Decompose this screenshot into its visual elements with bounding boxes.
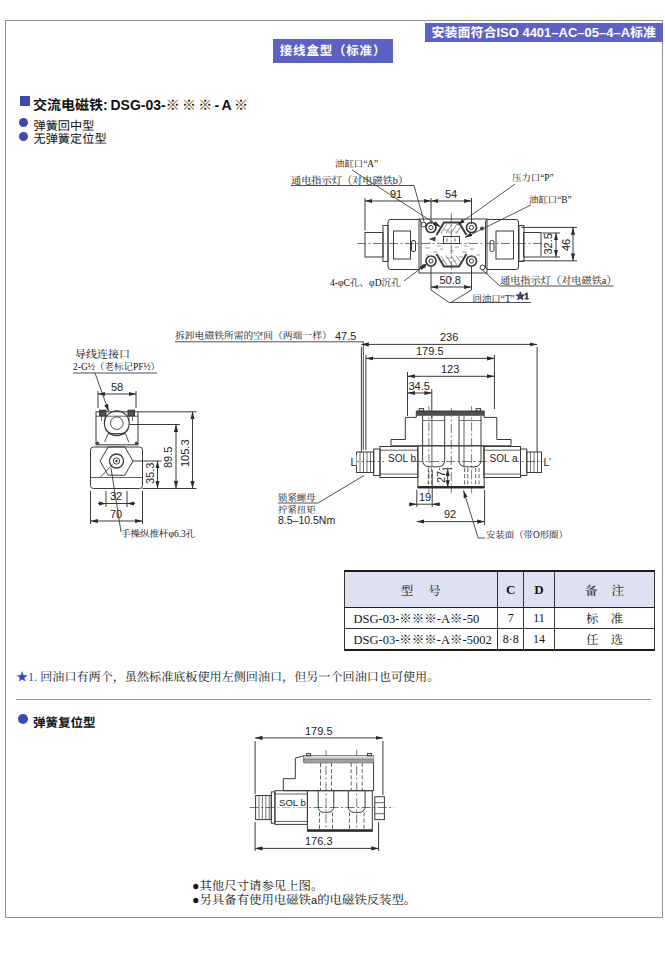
- svg-text:236: 236: [440, 331, 458, 343]
- svg-text:导线连接口: 导线连接口: [75, 348, 130, 360]
- svg-text:179.5: 179.5: [416, 345, 444, 357]
- svg-text:50.8: 50.8: [440, 274, 461, 286]
- svg-text:手操纵推杆φ6.3孔: 手操纵推杆φ6.3孔: [121, 529, 196, 539]
- svg-text:油缸口“B”: 油缸口“B”: [529, 195, 572, 205]
- svg-text:89.5: 89.5: [162, 447, 174, 468]
- svg-text:46: 46: [560, 239, 572, 251]
- svg-text:L: L: [351, 456, 357, 468]
- svg-text:8.5–10.5Nm: 8.5–10.5Nm: [278, 514, 335, 526]
- svg-text:2-G½（老标记PF½）: 2-G½（老标记PF½）: [73, 361, 160, 372]
- svg-text:92: 92: [444, 508, 456, 520]
- svg-text:通电指示灯（对电磁铁a）: 通电指示灯（对电磁铁a）: [500, 275, 617, 286]
- svg-text:27: 27: [435, 471, 447, 483]
- svg-text:拆卸电磁铁所需的空间（两端一样）: 拆卸电磁铁所需的空间（两端一样）: [175, 330, 332, 341]
- svg-text:SOL b: SOL b: [388, 453, 416, 464]
- svg-text:回油口“T”: 回油口“T”: [473, 294, 515, 304]
- svg-text:锁紧螺母: 锁紧螺母: [278, 493, 316, 503]
- svg-text:4-φC孔、φD沉孔: 4-φC孔、φD沉孔: [330, 277, 401, 288]
- svg-text:L’: L’: [544, 456, 552, 468]
- svg-text:★1: ★1: [516, 291, 529, 301]
- svg-text:176.3: 176.3: [305, 835, 333, 847]
- svg-text:179.5: 179.5: [305, 725, 333, 737]
- svg-text:油缸口“A”: 油缸口“A”: [335, 159, 378, 169]
- svg-text:47.5: 47.5: [335, 330, 356, 342]
- svg-text:58: 58: [111, 381, 123, 393]
- svg-text:54: 54: [445, 188, 457, 200]
- svg-text:32.5: 32.5: [542, 233, 554, 254]
- svg-text:19: 19: [419, 491, 431, 503]
- svg-text:安装面（带O形圈）: 安装面（带O形圈）: [486, 530, 568, 540]
- svg-text:34.5: 34.5: [409, 380, 430, 392]
- svg-text:70: 70: [110, 508, 122, 520]
- svg-text:通电指示灯（对电磁铁b）: 通电指示灯（对电磁铁b）: [291, 175, 408, 186]
- svg-text:压力口“P”: 压力口“P”: [512, 173, 554, 183]
- svg-text:123: 123: [441, 363, 459, 375]
- svg-text:SOL b: SOL b: [279, 797, 306, 808]
- svg-text:105.3: 105.3: [179, 439, 191, 467]
- svg-text:拧紧扭矩: 拧紧扭矩: [278, 505, 316, 515]
- svg-text:SOL a: SOL a: [490, 453, 518, 464]
- svg-text:35.3: 35.3: [144, 463, 156, 484]
- svg-text:91: 91: [390, 188, 402, 200]
